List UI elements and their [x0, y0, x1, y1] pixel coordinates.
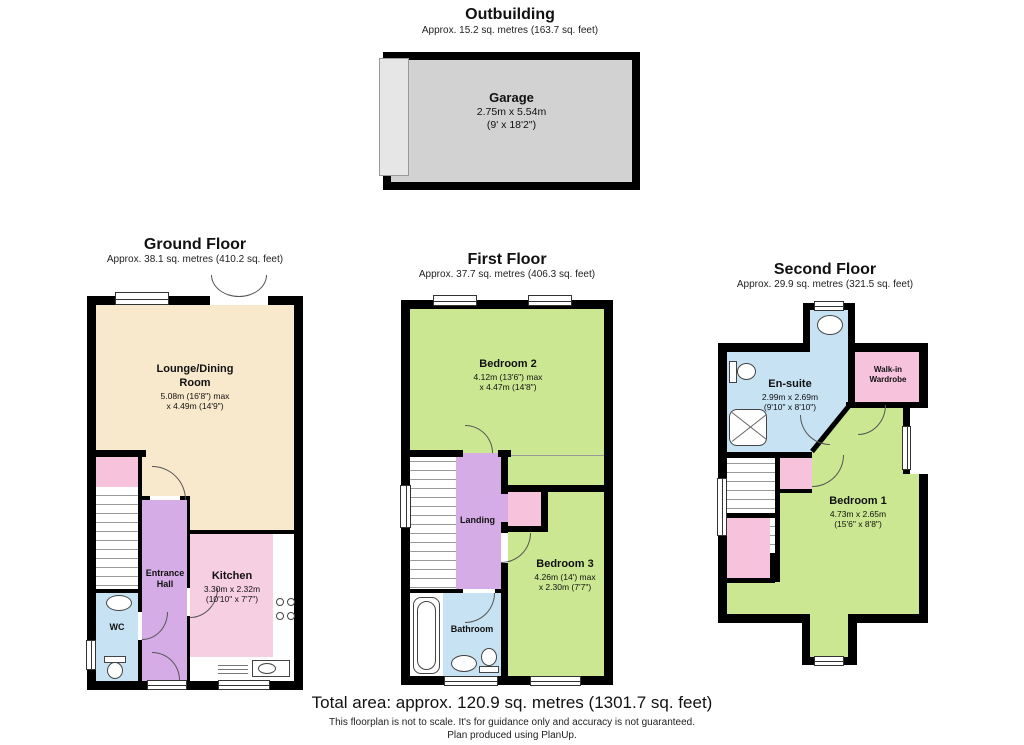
sf-wall [727, 452, 812, 458]
second-floor-area: Approx. 29.9 sq. metres (321.5 sq. feet) [677, 279, 973, 290]
bedroom1-dims1: 4.73m x 2.65m [808, 509, 908, 520]
garage-dims-imperial: (9' x 18'2") [391, 119, 632, 132]
bathroom-name: Bathroom [443, 624, 501, 635]
hob-ring-icon [287, 598, 295, 606]
ff-wall [410, 450, 463, 457]
ff-bedroom3-label: Bedroom 3 4.26m (14') max x 2.30m (7'7") [515, 558, 615, 593]
ff-open-divider-line [511, 455, 604, 456]
ensuite-sink-icon [817, 315, 843, 335]
ff-wall [501, 593, 508, 676]
second-floor-title: Second Floor [705, 261, 945, 279]
landing-name: Landing [450, 515, 505, 526]
bedroom2-dims2: x 4.47m (14'8") [458, 382, 558, 393]
gf-window-left [86, 640, 96, 670]
bathroom-sink-icon [451, 655, 477, 672]
gf-wall [96, 450, 146, 457]
hob-ring-icon [276, 612, 284, 620]
gf-lounge-label: Lounge/Dining Room 5.08m (16'8") max x 4… [145, 363, 245, 412]
gf-kitchen-label: Kitchen 3.30m x 2.32m (10'10" x 7'7") [187, 570, 277, 605]
sf-right-recess [910, 408, 928, 474]
sf-wardrobe-label: Walk-in Wardrobe [857, 365, 919, 385]
hob-ring-icon [287, 612, 295, 620]
garage-dims-metric: 2.75m x 5.54m [391, 106, 632, 119]
garage-label: Garage 2.75m x 5.54m (9' x 18'2") [391, 90, 632, 133]
kitchen-dims1: 3.30m x 2.32m [187, 584, 277, 595]
bathtub-inner-icon [417, 601, 436, 670]
ff-wall [508, 485, 613, 492]
ff-bedroom3-room-upper [548, 492, 604, 532]
bedroom2-dims1: 4.12m (13'6") max [458, 372, 558, 383]
bathroom-toilet-icon [481, 648, 497, 666]
first-floor-title: First Floor [401, 251, 613, 269]
hob-ring-icon [276, 598, 284, 606]
total-area-text: Total area: approx. 120.9 sq. metres (13… [0, 693, 1024, 713]
wardrobe-name: Walk-in Wardrobe [857, 365, 919, 385]
ff-wall [541, 492, 548, 526]
sf-ensuite-label: En-suite 2.99m x 2.69m (9'10" x 8'10") [740, 378, 840, 413]
bedroom3-dims1: 4.26m (14') max [515, 572, 615, 583]
outbuilding-title: Outbuilding [380, 6, 640, 24]
floorplan-page: Outbuilding Approx. 15.2 sq. metres (163… [0, 0, 1024, 745]
sf-stair-landing [727, 518, 770, 582]
wc-name: WC [96, 622, 138, 633]
sf-window-left [717, 478, 727, 536]
ff-window-left [400, 485, 411, 528]
bedroom2-name: Bedroom 2 [458, 358, 558, 372]
kitchen-sink-bowl-icon [258, 663, 276, 674]
bedroom1-dims2: (15'6" x 8'8") [808, 519, 908, 530]
entrance-hall-name: Entrance Hall [142, 568, 188, 591]
ff-window-bottom-left [444, 676, 498, 686]
ground-floor-area: Approx. 38.1 sq. metres (410.2 sq. feet) [47, 254, 343, 265]
gf-wall [187, 530, 303, 534]
lounge-name: Lounge/Dining Room [145, 363, 245, 391]
ensuite-toilet-tank-icon [729, 361, 737, 383]
ensuite-dims2: (9'10" x 8'10") [740, 402, 840, 413]
sf-window-right [902, 426, 911, 470]
sf-wall [775, 489, 812, 493]
ff-bedroom2-label: Bedroom 2 4.12m (13'6") max x 4.47m (14'… [458, 358, 558, 393]
ff-wall [508, 526, 548, 532]
ff-landing-label: Landing [450, 515, 505, 526]
gf-french-door-right-icon [239, 275, 267, 297]
disclaimer-line2: Plan produced using PlanUp. [0, 730, 1024, 741]
disclaimer-line1: This floorplan is not to scale. It's for… [0, 717, 1024, 728]
wc-sink-icon [106, 595, 132, 611]
kitchen-dims2: (10'10" x 7'7") [187, 594, 277, 605]
gf-hall-label: Entrance Hall [142, 568, 188, 591]
ff-bedroom2-room-lower [508, 453, 604, 485]
bathroom-toilet-tank-icon [479, 666, 499, 673]
sf-window-top-dormer [814, 301, 844, 311]
gf-entrance-hall-room [142, 500, 187, 681]
lounge-dims2: x 4.49m (14'9") [145, 401, 245, 412]
gf-french-door-opening [210, 296, 268, 305]
sf-bedroom1-label: Bedroom 1 4.73m x 2.65m (15'6" x 8'8") [808, 495, 908, 530]
ensuite-dims1: 2.99m x 2.69m [740, 392, 840, 403]
gf-stair-landing [96, 457, 138, 487]
sf-wall [775, 455, 780, 582]
wc-toilet-icon [107, 662, 123, 679]
ff-window-top-left [433, 295, 477, 306]
gf-window-top [115, 292, 169, 305]
outbuilding-area: Approx. 15.2 sq. metres (163.7 sq. feet) [355, 25, 665, 36]
ff-bathroom-label: Bathroom [443, 624, 501, 635]
gf-wall [96, 589, 140, 593]
gf-front-door-threshold [147, 680, 187, 690]
sf-bedroom1-lower [727, 582, 919, 614]
sf-window-bottom-dormer [814, 656, 844, 666]
gf-wc-label: WC [96, 622, 138, 633]
gf-window-bottom [218, 680, 270, 690]
ff-window-bottom-right [530, 676, 581, 686]
sf-wall [727, 513, 775, 518]
gf-stairs [96, 487, 138, 589]
sf-bedroom1-dormer [810, 612, 848, 657]
ff-cupboard [508, 492, 541, 526]
bedroom3-dims2: x 2.30m (7'7") [515, 582, 615, 593]
ff-window-top-right [528, 295, 572, 306]
ground-floor-title: Ground Floor [77, 236, 313, 254]
kitchen-name: Kitchen [187, 570, 277, 584]
ensuite-name: En-suite [740, 378, 840, 392]
bedroom1-name: Bedroom 1 [808, 495, 908, 509]
lounge-dims1: 5.08m (16'8") max [145, 391, 245, 402]
gf-french-door-left-icon [211, 275, 239, 297]
garage-name: Garage [391, 90, 632, 106]
first-floor-area: Approx. 37.7 sq. metres (406.3 sq. feet) [359, 269, 655, 280]
bedroom3-name: Bedroom 3 [515, 558, 615, 572]
sf-wall [727, 578, 775, 583]
sf-wall [848, 343, 855, 408]
kitchen-drainer-icon [218, 662, 248, 676]
sf-closet [780, 455, 812, 493]
